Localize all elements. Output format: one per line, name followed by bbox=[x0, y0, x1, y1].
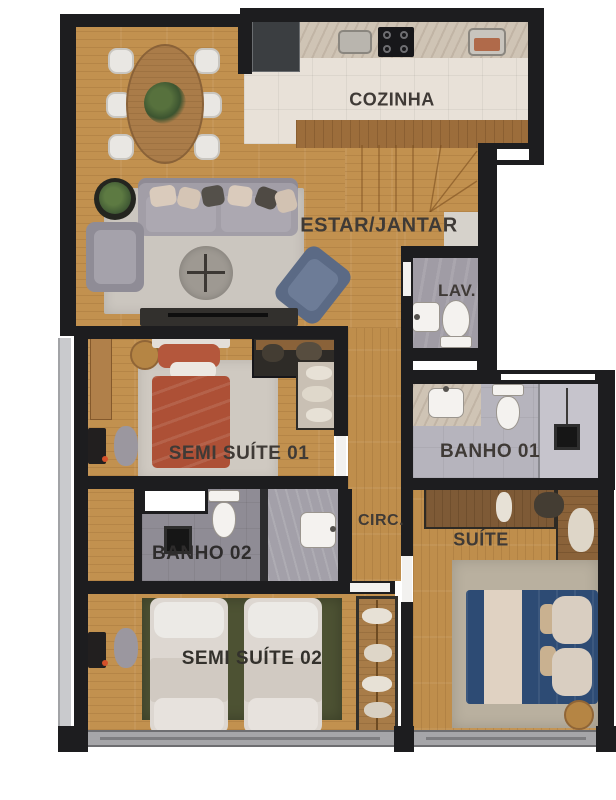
ss02-bed1-foot bbox=[154, 698, 224, 732]
banho01-washbasin bbox=[428, 388, 464, 418]
suite-side-table bbox=[564, 700, 594, 730]
sofa-pillow bbox=[149, 184, 178, 207]
ss02-window-glass-line bbox=[100, 737, 380, 740]
suite-door-opening bbox=[402, 556, 412, 602]
ss02-wardrobe-clothes bbox=[362, 608, 392, 624]
wall-living-ss01 bbox=[74, 326, 348, 339]
ss02-wardrobe-clothes bbox=[364, 644, 392, 662]
ss01-door-indicator bbox=[102, 456, 108, 462]
room-label-cozinha: COZINHA bbox=[349, 90, 435, 111]
wall-kitchen-right bbox=[528, 8, 544, 165]
ss02-bench bbox=[114, 628, 138, 668]
room-label-semi-suite-02: SEMI SUÍTE 02 bbox=[182, 648, 323, 670]
corner-post bbox=[394, 726, 414, 752]
wall-top-dining bbox=[60, 14, 244, 27]
suite-wardrobe-clothes bbox=[496, 492, 512, 522]
banho01-toilet-bowl bbox=[496, 396, 520, 430]
wall-banho02-ss02 bbox=[74, 581, 395, 594]
kitchen-sink bbox=[338, 30, 372, 54]
ss02-bed2-pillow bbox=[248, 602, 318, 638]
wall-banho02-left bbox=[134, 489, 142, 581]
dining-chair bbox=[194, 48, 220, 74]
room-label-banho-01: BANHO 01 bbox=[440, 441, 540, 463]
cooktop-burner bbox=[400, 45, 408, 53]
sofa-pillow bbox=[227, 184, 254, 207]
room-label-banho-02: BANHO 02 bbox=[152, 543, 252, 565]
cooktop-burner bbox=[383, 45, 391, 53]
wall-banho02-right bbox=[338, 489, 352, 583]
wall-banho02-divider bbox=[260, 489, 268, 581]
ss01-closet-items bbox=[262, 344, 284, 362]
balcony-track bbox=[58, 338, 71, 728]
suite-wardrobe-clothes bbox=[534, 492, 564, 518]
banho01-washbasin-faucet bbox=[443, 386, 449, 392]
ss02-wardrobe-clothes bbox=[362, 676, 392, 692]
suite-bed-pillow bbox=[552, 596, 592, 644]
cooktop-burner bbox=[383, 31, 391, 39]
ss01-closet-clothes bbox=[302, 386, 332, 402]
wall-suite-right bbox=[598, 488, 614, 732]
corner-post bbox=[596, 726, 616, 752]
dining-chair bbox=[108, 48, 134, 74]
floor-banho02-entry bbox=[88, 489, 134, 581]
wall-ss01-right bbox=[334, 336, 348, 436]
wall-kitchen-left bbox=[238, 14, 252, 74]
wall-banho01-suite bbox=[408, 478, 615, 490]
wall-banho01-right bbox=[598, 370, 615, 490]
banho01-toilet-tank bbox=[492, 384, 524, 396]
lav-toilet-bowl bbox=[442, 300, 470, 338]
banho02-washbasin-faucet bbox=[330, 526, 336, 532]
room-label-estar-jantar: ESTAR/JANTAR bbox=[300, 215, 457, 238]
suite-bed-pillow bbox=[552, 648, 592, 696]
lav-toilet-tank bbox=[440, 336, 472, 348]
banho01-window bbox=[499, 372, 597, 382]
ss02-door-indicator bbox=[102, 660, 108, 666]
ss01-door-leaf bbox=[90, 338, 112, 420]
wall-top-kitchen bbox=[240, 8, 544, 22]
wall-ss01-banho02 bbox=[74, 476, 348, 489]
dining-chair bbox=[108, 134, 134, 160]
armchair-cushion bbox=[94, 230, 136, 284]
kitchen-window bbox=[492, 146, 532, 163]
ss02-bed1-pillow bbox=[154, 602, 224, 638]
sofa-pillow-dark bbox=[200, 184, 225, 208]
lav-washbasin-faucet bbox=[414, 314, 420, 320]
ss01-closet-clothes bbox=[306, 366, 332, 380]
ss01-bench bbox=[114, 426, 138, 466]
floor-corridor bbox=[348, 328, 401, 581]
suite-wardrobe-clothes bbox=[568, 508, 594, 552]
refrigerator bbox=[252, 20, 300, 72]
wall-suite-left-lower bbox=[401, 602, 413, 732]
ss01-door-opening bbox=[336, 436, 346, 478]
lav-door-opening bbox=[403, 262, 411, 296]
banho02-window bbox=[142, 488, 208, 514]
dining-centerpiece-plant bbox=[144, 82, 186, 124]
wall-corridor-suite bbox=[401, 390, 413, 556]
dining-chair bbox=[194, 134, 220, 160]
room-label-semi-suite-01: SEMI SUÍTE 01 bbox=[169, 443, 310, 465]
wall-left-lower bbox=[74, 332, 88, 728]
cooktop-burner bbox=[400, 31, 408, 39]
ss01-closet-items bbox=[296, 342, 322, 362]
floor-plan: COZINHA ESTAR/JANTAR LAV. SEMI SUÍTE 01 … bbox=[0, 0, 616, 800]
suite-window-glass-line bbox=[426, 737, 586, 740]
corner-post bbox=[58, 726, 88, 752]
suite-bed-runner bbox=[484, 590, 522, 704]
room-label-lav: LAV. bbox=[438, 281, 476, 301]
banho01-floor-drain bbox=[554, 424, 580, 450]
tv-console bbox=[140, 308, 298, 326]
room-label-suite: SUÍTE bbox=[453, 530, 509, 551]
stairs bbox=[345, 145, 478, 212]
kitchen-second-sink-basin bbox=[474, 38, 500, 51]
ss02-wardrobe-clothes bbox=[364, 702, 392, 718]
banho02-toilet-tank bbox=[208, 490, 240, 502]
ss02-bed2-foot bbox=[248, 698, 318, 732]
wall-left-upper bbox=[60, 14, 76, 336]
coffee-table-cross bbox=[204, 254, 207, 292]
ss02-door-opening bbox=[350, 583, 390, 592]
floor-plant-leaves bbox=[99, 182, 131, 214]
banho01-shower-pipe bbox=[566, 388, 568, 424]
ss01-closet-clothes bbox=[306, 408, 332, 422]
wall-lav-top bbox=[401, 246, 497, 258]
room-label-circ: CIRC. bbox=[358, 512, 404, 530]
tv-screen bbox=[168, 313, 268, 317]
banho02-toilet-bowl bbox=[212, 502, 236, 538]
